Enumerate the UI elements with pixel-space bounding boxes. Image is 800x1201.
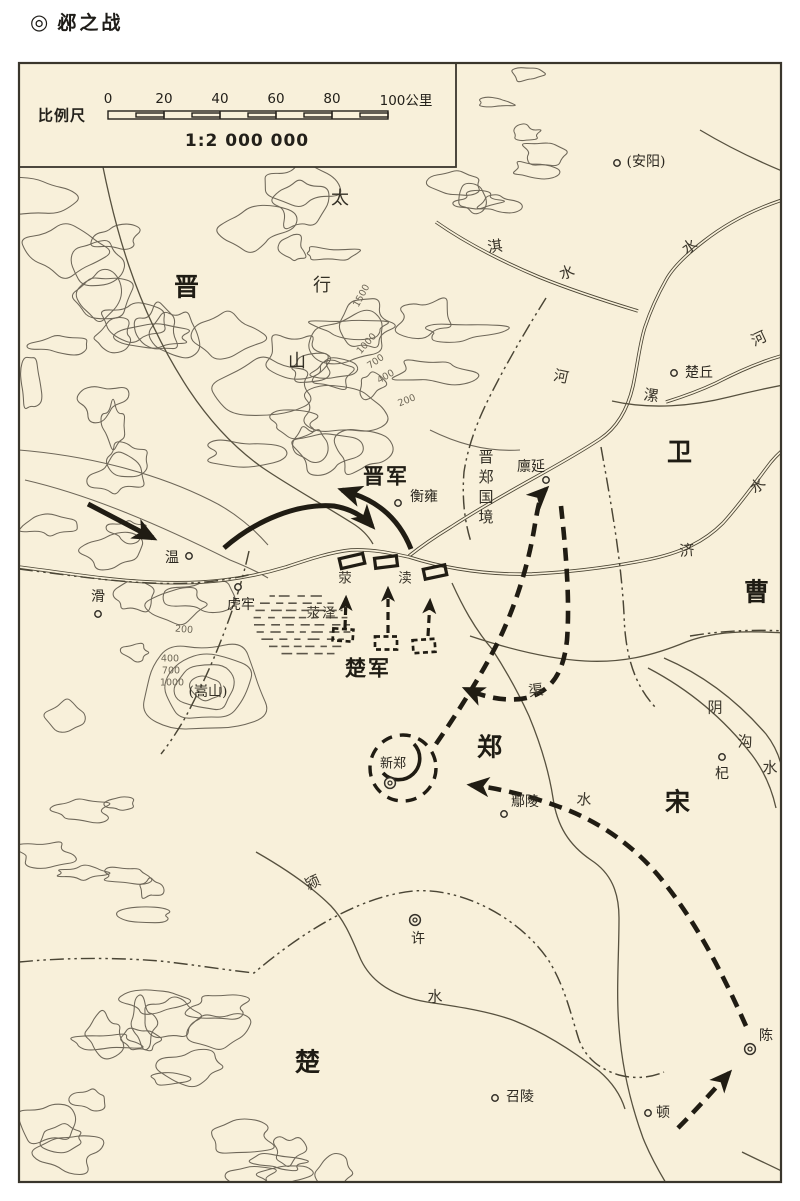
- marker-town-yanling: [501, 811, 507, 817]
- chu-assault-arrow-3: [428, 601, 430, 636]
- title-text: 邲之战: [57, 8, 123, 35]
- page-title: ◎ 邲之战: [30, 8, 123, 35]
- marker-town-anyang: [614, 160, 620, 166]
- scale-box: [19, 63, 456, 167]
- marker-town-chen: [745, 1044, 756, 1055]
- title-marker-icon: ◎: [30, 10, 48, 34]
- marker-town-linyan: [543, 477, 549, 483]
- marker-town-xu: [410, 915, 421, 926]
- marker-town-chuqiu: [671, 370, 677, 376]
- map-canvas: [0, 0, 800, 1201]
- marker-town-shaoling: [492, 1095, 498, 1101]
- marker-town-hua: [95, 611, 101, 617]
- marker-town-hulao: [235, 584, 241, 590]
- battle-of-bi-map: 比例尺 1:2 000 000 020406080 100公里 晋卫曹郑宋楚晋军…: [0, 0, 800, 1201]
- marker-town-dun: [645, 1110, 651, 1116]
- marker-town-hengyong: [395, 500, 401, 506]
- marker-town-xinzheng: [385, 778, 396, 789]
- marker-town-qi: [719, 754, 725, 760]
- marker-town-wen: [186, 553, 192, 559]
